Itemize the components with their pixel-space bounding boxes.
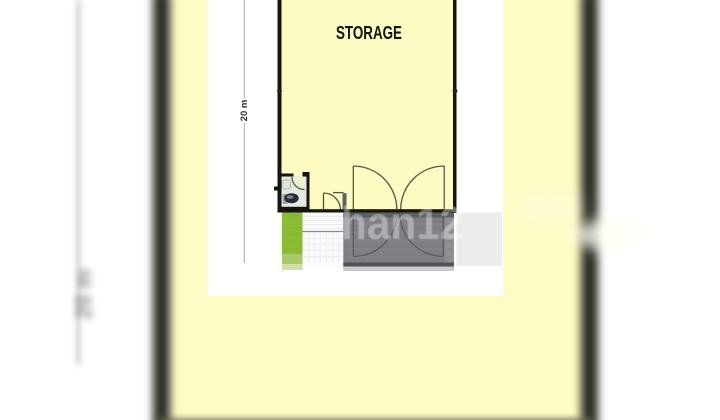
- svg-text:20 m: 20 m: [239, 100, 250, 122]
- svg-text:STORAGE: STORAGE: [336, 23, 402, 43]
